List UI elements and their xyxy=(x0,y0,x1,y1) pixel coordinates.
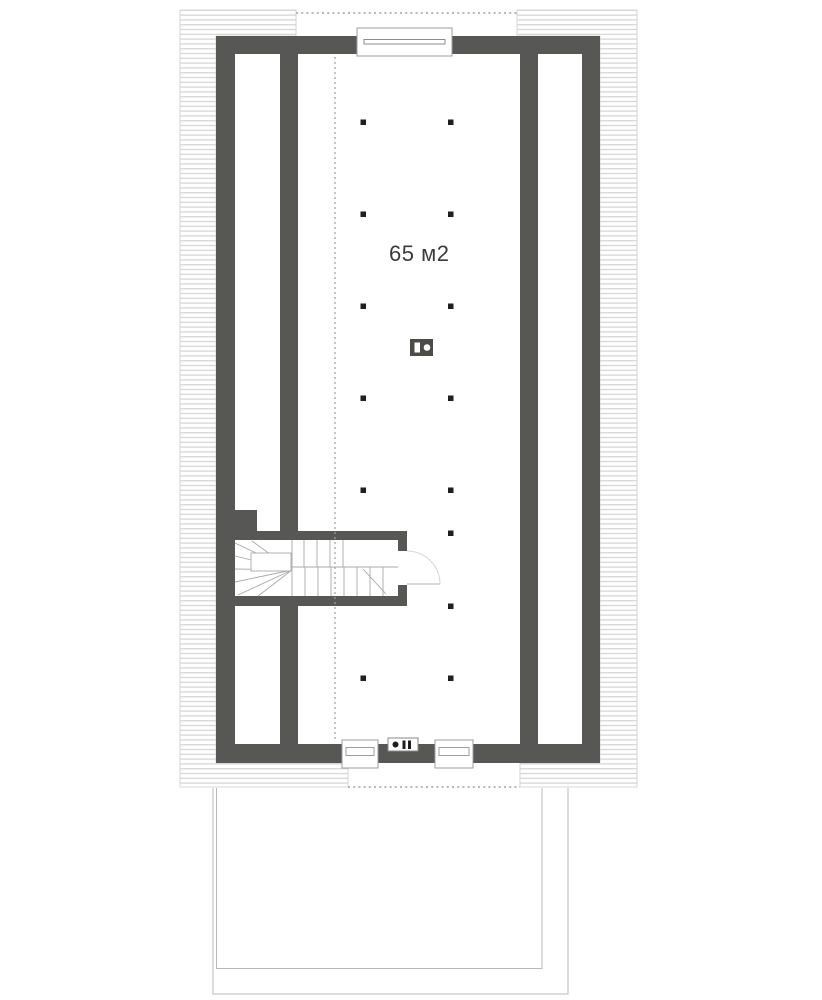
door-swing xyxy=(407,551,440,584)
floor-plan-drawing xyxy=(0,0,822,1000)
floorplan-canvas: 65 м2 xyxy=(0,0,822,1000)
roof-hatch-left xyxy=(180,10,348,787)
chimney-icon xyxy=(410,339,433,356)
window-bottom-right xyxy=(435,740,473,768)
window-top xyxy=(357,28,452,56)
staircase xyxy=(235,540,398,596)
terrace-outline xyxy=(213,788,568,994)
exterior-walls xyxy=(216,36,600,763)
window-bottom-left xyxy=(342,740,378,768)
room-area-label: 65 м2 xyxy=(389,241,449,267)
knee-walls xyxy=(235,54,538,744)
vent-icon xyxy=(388,738,418,751)
